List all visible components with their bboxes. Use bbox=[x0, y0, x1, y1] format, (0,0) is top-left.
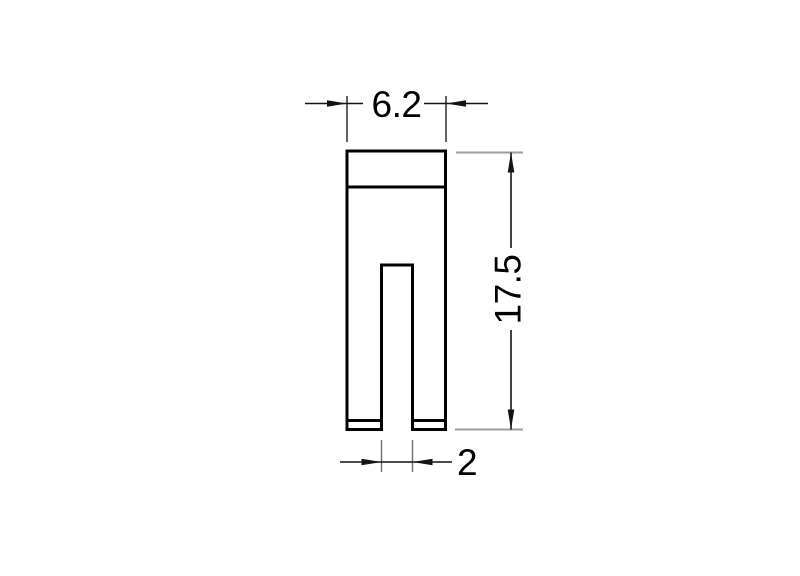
drawing-canvas: 6.2 17.5 2 bbox=[0, 0, 800, 576]
dimension-slot-bottom: 2 bbox=[340, 440, 477, 483]
dimension-label-height: 17.5 bbox=[488, 254, 529, 324]
dimension-height-right: 17.5 bbox=[455, 153, 529, 430]
part-outline bbox=[347, 151, 446, 430]
dimension-label-width: 6.2 bbox=[372, 84, 422, 125]
technical-drawing: 6.2 17.5 2 bbox=[0, 0, 800, 576]
dimension-width-top: 6.2 bbox=[305, 84, 488, 142]
arrow-left-icon bbox=[413, 459, 433, 466]
arrow-left-icon bbox=[446, 100, 466, 107]
part-outline-group bbox=[347, 151, 446, 430]
arrow-up-icon bbox=[508, 153, 515, 173]
arrow-right-icon bbox=[327, 100, 347, 107]
arrow-right-icon bbox=[362, 459, 382, 466]
dimension-label-slot: 2 bbox=[457, 442, 477, 483]
arrow-down-icon bbox=[508, 410, 515, 430]
